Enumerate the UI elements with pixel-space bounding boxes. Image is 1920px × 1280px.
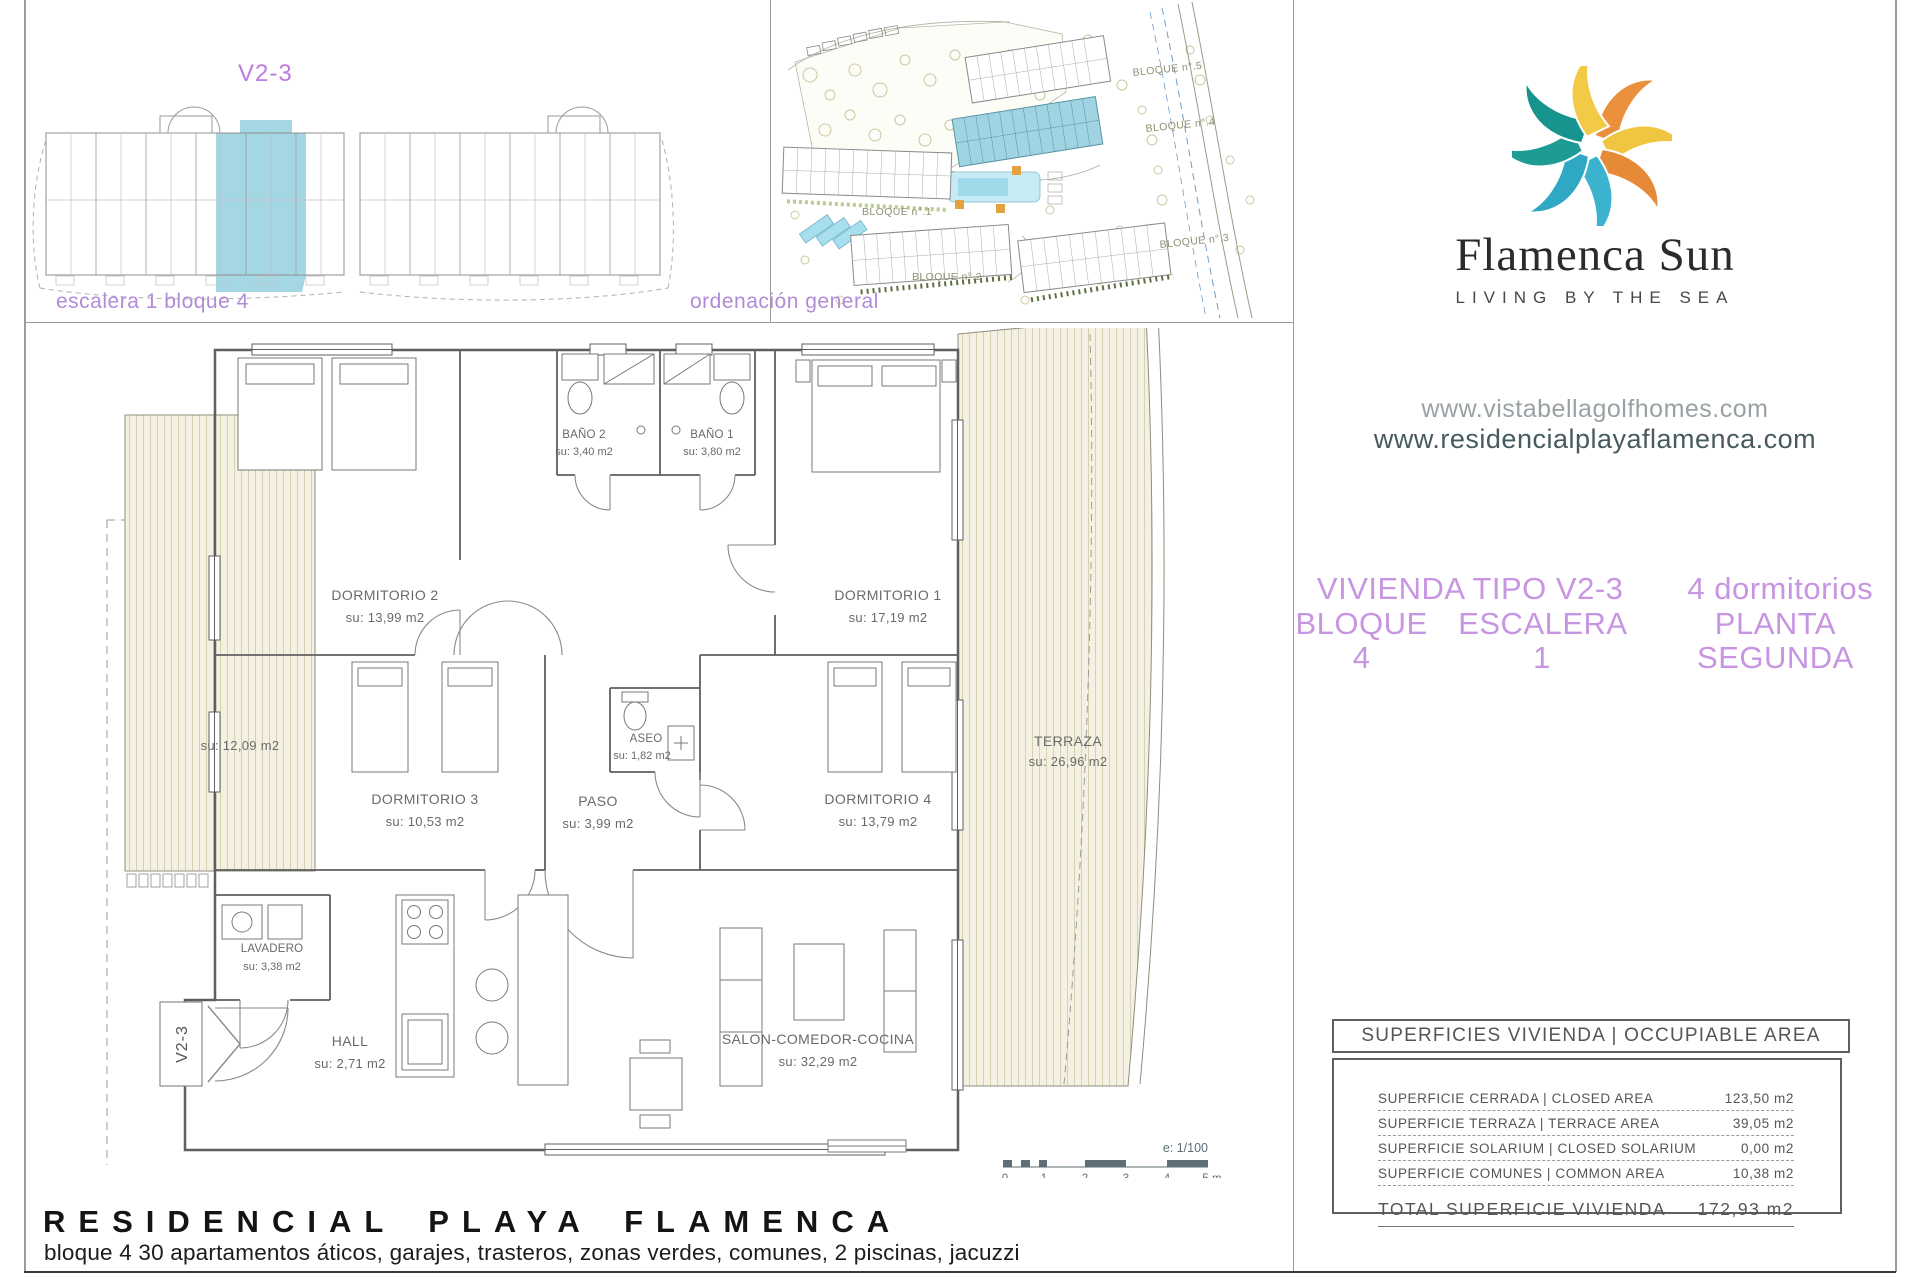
total-label: TOTAL SUPERFICIE VIVIENDA	[1378, 1199, 1666, 1220]
area-row-value: 123,50 m2	[1725, 1091, 1794, 1106]
room-label-bano1: BAÑO 1	[690, 428, 733, 441]
sheet-border-right	[1895, 0, 1897, 1272]
scale-tick-1: 1	[1041, 1173, 1047, 1178]
website-link-1[interactable]: www.vistabellagolfhomes.com	[1295, 395, 1895, 424]
overview-caption: escalera 1 bloque 4	[56, 290, 249, 314]
room-label-terraza: TERRAZA	[1034, 733, 1102, 749]
room-label-paso: PASO	[578, 793, 617, 809]
unit-entrance-marker: V2-3	[160, 1002, 240, 1086]
scale-tick-5: 5 m	[1202, 1173, 1221, 1178]
room-label-dormitorio2: DORMITORIO 2	[331, 587, 438, 603]
area-row-label: SUPERFICIE TERRAZA | TERRACE AREA	[1378, 1116, 1660, 1131]
table-row: SUPERFICIE SOLARIUM | CLOSED SOLARIUM 0,…	[1378, 1136, 1794, 1161]
area-row-value: 10,38 m2	[1733, 1166, 1794, 1181]
scale-tick-4: 4	[1164, 1173, 1171, 1178]
table-total-row: TOTAL SUPERFICIE VIVIENDA 172,93 m2	[1378, 1186, 1794, 1227]
area-row-label: SUPERFICIE SOLARIUM | CLOSED SOLARIUM	[1378, 1141, 1696, 1156]
siteplan-map: BLOQUE n°.5 BLOQUE n°.4 BLOQUE n°.1 BLOQ…	[770, 0, 1293, 322]
flamenca-sun-logo-icon	[1512, 66, 1672, 226]
siteplan-bloque3	[1018, 223, 1174, 301]
room-label-dormitorio4: DORMITORIO 4	[824, 791, 931, 807]
room-area-dormitorio1: su: 17,19 m2	[849, 610, 928, 625]
room-area-bano2: su: 3,40 m2	[555, 446, 612, 458]
scale-tick-3: 3	[1123, 1173, 1129, 1178]
room-area-paso: su: 3,99 m2	[562, 816, 633, 831]
areas-table-header: SUPERFICIES VIVIENDA | OCCUPIABLE AREA	[1332, 1019, 1850, 1053]
scale-ratio-label: e: 1/100	[1163, 1141, 1208, 1155]
room-area-salon: su: 32,29 m2	[779, 1054, 858, 1069]
unit-bedrooms-label: 4 dormitorios	[1687, 572, 1873, 607]
room-area-terraza: su: 26,96 m2	[1029, 754, 1108, 769]
room-area-dormitorio3: su: 10,53 m2	[386, 814, 465, 829]
development-title: RESIDENCIAL PLAYA FLAMENCA	[43, 1204, 902, 1240]
room-area-bano1: su: 3,80 m2	[683, 446, 740, 458]
room-label-aseo: ASEO	[630, 733, 663, 745]
table-row: SUPERFICIE TERRAZA | TERRACE AREA 39,05 …	[1378, 1111, 1794, 1136]
overview-building-right	[360, 107, 660, 285]
siteplan-label-bloque3: BLOQUE n°.3	[1159, 232, 1230, 251]
unit-marker-label: V2-3	[174, 1025, 191, 1063]
unit-block-label: BLOQUE 4	[1295, 607, 1428, 676]
unit-stair-label: ESCALERA 1	[1458, 607, 1626, 676]
development-subtitle: bloque 4 30 apartamentos áticos, garajes…	[44, 1240, 1020, 1266]
room-area-aseo: su: 1,82 m2	[613, 750, 670, 762]
divider-top-panels	[24, 322, 1293, 323]
room-area-dormitorio2: su: 13,99 m2	[346, 610, 425, 625]
siteplan-label-bloque1: BLOQUE n°.1	[862, 206, 932, 218]
room-area-hall: su: 2,71 m2	[314, 1056, 385, 1071]
area-row-value: 0,00 m2	[1741, 1141, 1794, 1156]
sheet-border-bottom	[24, 1271, 1896, 1273]
siteplan-bloque1	[782, 147, 952, 210]
room-label-hall: HALL	[332, 1033, 369, 1049]
total-value: 172,93 m2	[1698, 1199, 1794, 1220]
scale-tick-0: 0	[1002, 1173, 1008, 1178]
siteplan-label-bloque2: BLOQUE n°.2	[912, 271, 982, 283]
overview-keyplan	[24, 0, 770, 322]
room-label-salon: SALON-COMEDOR-COCINA	[722, 1031, 915, 1047]
scale-tick-2: 2	[1082, 1173, 1088, 1178]
overview-highlighted-unit	[216, 120, 306, 292]
unit-floor-label: PLANTA SEGUNDA	[1656, 607, 1895, 676]
divider-vertical-2	[1293, 0, 1294, 1272]
table-row: SUPERFICIE COMUNES | COMMON AREA 10,38 m…	[1378, 1161, 1794, 1186]
area-row-label: SUPERFICIE CERRADA | CLOSED AREA	[1378, 1091, 1654, 1106]
website-link-2[interactable]: www.residencialplayaflamenca.com	[1295, 424, 1895, 455]
room-label-lavadero: LAVADERO	[241, 943, 304, 955]
room-area-terraza-izquierda: su: 12,09 m2	[201, 738, 280, 753]
brand-tagline: LIVING BY THE SEA	[1295, 288, 1895, 308]
siteplan-label-bloque4: BLOQUE n°.4	[1145, 116, 1216, 135]
unit-type-label: VIVIENDA TIPO V2-3	[1317, 572, 1623, 607]
scale-bar: e: 1/100 0 1 2 3 4 5 m	[1002, 1141, 1222, 1178]
floorplan-drawing: DORMITORIO 2 su: 13,99 m2 BAÑO 2 su: 3,4…	[95, 328, 1255, 1178]
area-row-value: 39,05 m2	[1733, 1116, 1794, 1131]
siteplan-caption: ordenación general	[690, 290, 879, 314]
area-row-label: SUPERFICIE COMUNES | COMMON AREA	[1378, 1166, 1665, 1181]
room-label-bano2: BAÑO 2	[562, 428, 605, 441]
terrace-right	[958, 328, 1164, 1086]
table-row: SUPERFICIE CERRADA | CLOSED AREA 123,50 …	[1378, 1086, 1794, 1111]
logo-pinwheel	[1512, 66, 1672, 226]
room-label-dormitorio3: DORMITORIO 3	[371, 791, 478, 807]
room-label-dormitorio1: DORMITORIO 1	[834, 587, 941, 603]
room-area-lavadero: su: 3,38 m2	[243, 961, 300, 973]
areas-table: SUPERFICIE CERRADA | CLOSED AREA 123,50 …	[1332, 1058, 1842, 1214]
unit-heading: VIVIENDA TIPO V2-3 4 dormitorios BLOQUE …	[1295, 572, 1895, 676]
room-area-dormitorio4: su: 13,79 m2	[839, 814, 918, 829]
brand-name: Flamenca Sun	[1295, 228, 1895, 282]
